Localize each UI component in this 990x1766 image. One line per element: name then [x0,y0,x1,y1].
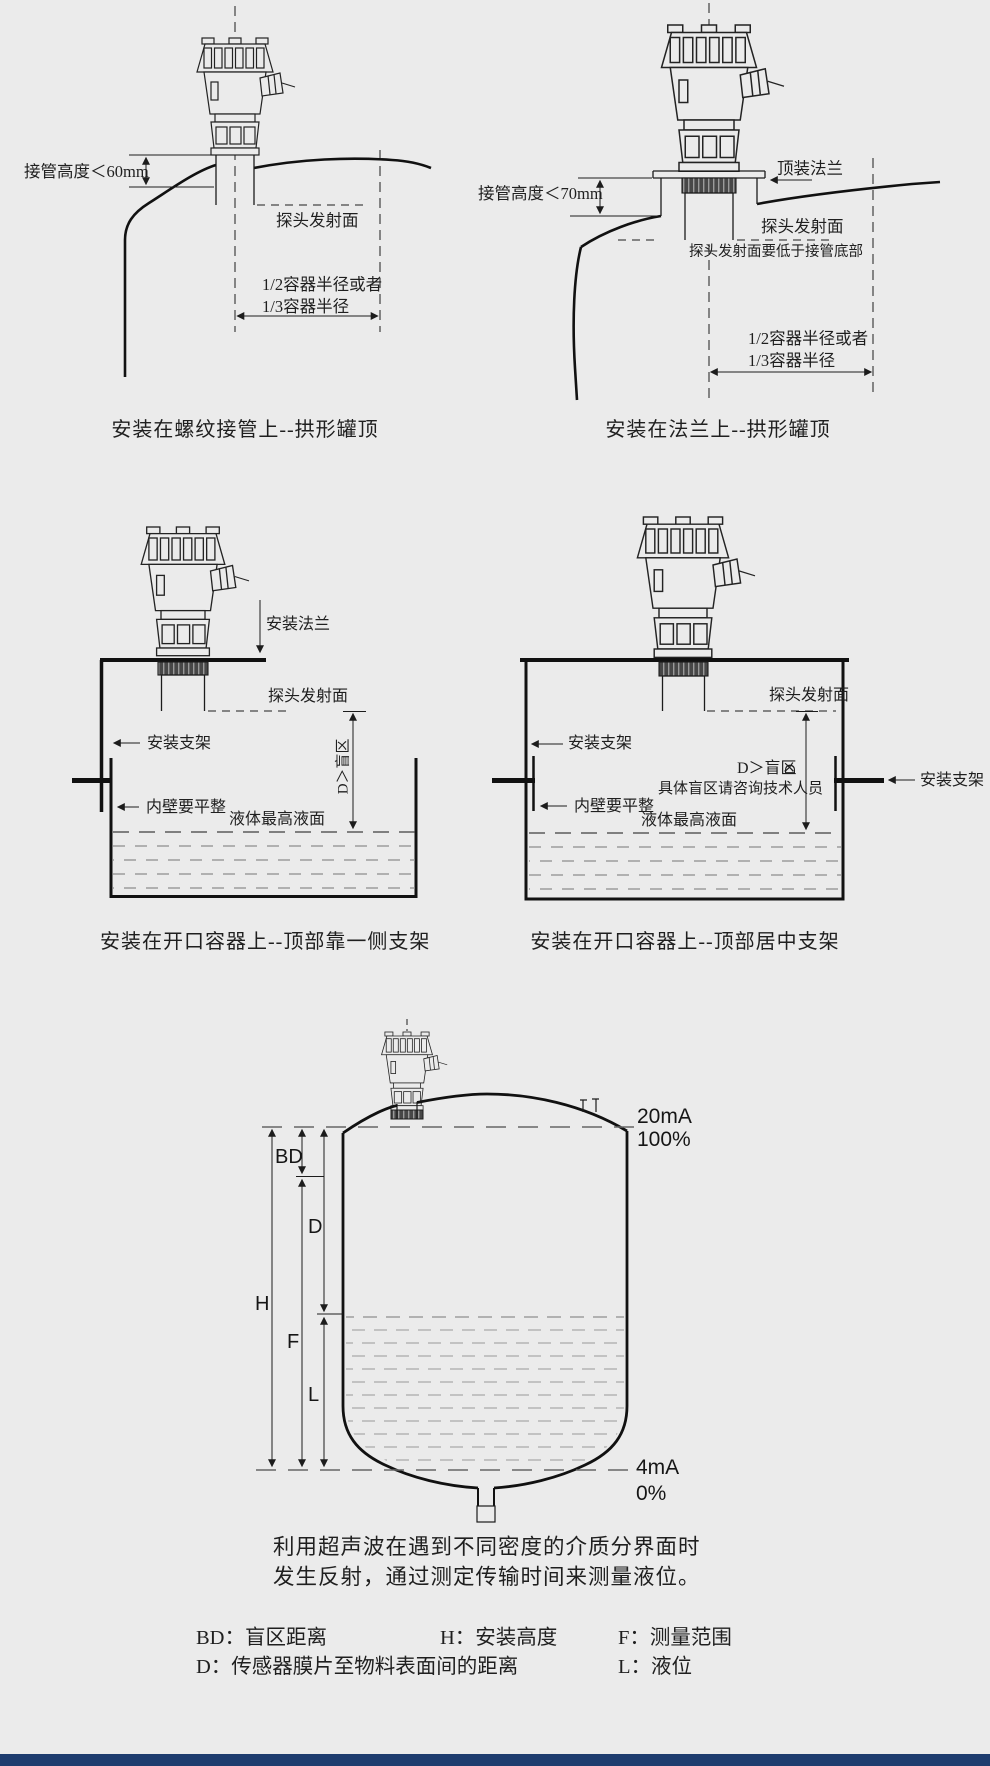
legend-bd: BD：盲区距离 [196,1626,327,1652]
d2-radius-line2: 1/3容器半径 [748,351,835,372]
d5-dim-l: L [308,1383,319,1408]
d2-caption: 安装在法兰上--拱形罐顶 [598,418,838,443]
legend-d: D：传感器膜片至物料表面间的距离 [196,1655,518,1681]
d4-emit-face-label: 探头发射面 [769,686,849,706]
diagram3-art [72,527,418,897]
legend-f: F：测量范围 [618,1626,732,1652]
d5-100pct-label: 100% [637,1127,691,1153]
d3-wall-flat-label: 内壁要平整 [146,798,226,818]
d5-0pct-label: 0% [636,1481,666,1507]
explanation-line2: 发生反射，通过测定传输时间来测量液位。 [273,1564,701,1591]
d2-emit-note: 探头发射面要低于接管底部 [689,243,863,261]
d4-bracket-right-label: 安装支架 [920,771,984,791]
diagram4-art [492,517,915,899]
d3-caption: 安装在开口容器上--顶部靠一侧支架 [100,930,430,955]
d2-emit-face-label: 探头发射面 [761,217,844,238]
diagram1-art [125,6,431,377]
d5-dim-h: H [255,1292,269,1317]
d2-radius-line1: 1/2容器半径或者 [748,329,868,350]
d5-dim-f: F [287,1330,299,1355]
d2-pipe-height-label: 接管高度＜70mm [478,184,592,205]
d4-dim-d-label: D [782,764,801,775]
d5-dim-d: D [308,1215,322,1240]
d1-radius-line1: 1/2容器半径或者 [262,275,382,296]
d4-caption: 安装在开口容器上--顶部居中支架 [520,930,850,955]
d3-mount-flange-label: 安装法兰 [266,615,330,635]
footer-bar [0,1754,990,1766]
diagram5-art [256,1019,636,1522]
explanation-line1: 利用超声波在遇到不同密度的介质分界面时 [273,1534,701,1561]
d5-dim-bd: BD [275,1145,303,1170]
d1-pipe-height-label: 接管高度＜60mm [24,162,138,183]
d3-max-level-label: 液体最高液面 [229,810,325,830]
d3-blind-zone-label: D＞盲区 [335,732,354,800]
d1-caption: 安装在螺纹接管上--拱形罐顶 [105,418,385,443]
d3-emit-face-label: 探头发射面 [268,687,348,707]
d5-4ma-label: 4mA [636,1455,679,1481]
d1-emit-face-label: 探头发射面 [276,211,359,232]
d4-bracket-left-label: 安装支架 [568,734,632,754]
legend-l: L：液位 [618,1655,692,1681]
d4-max-level-label: 液体最高液面 [641,811,737,831]
d1-radius-line2: 1/3容器半径 [262,297,349,318]
diagram-linework [0,0,990,1766]
manual-page: 接管高度＜60mm 探头发射面 1/2容器半径或者 1/3容器半径 安装在螺纹接… [0,0,990,1766]
d3-bracket-label: 安装支架 [147,734,211,754]
d2-top-flange-label: 顶装法兰 [777,159,843,180]
legend-h: H：安装高度 [440,1626,557,1652]
d4-blind-note: 具体盲区请咨询技术人员 [658,780,823,799]
